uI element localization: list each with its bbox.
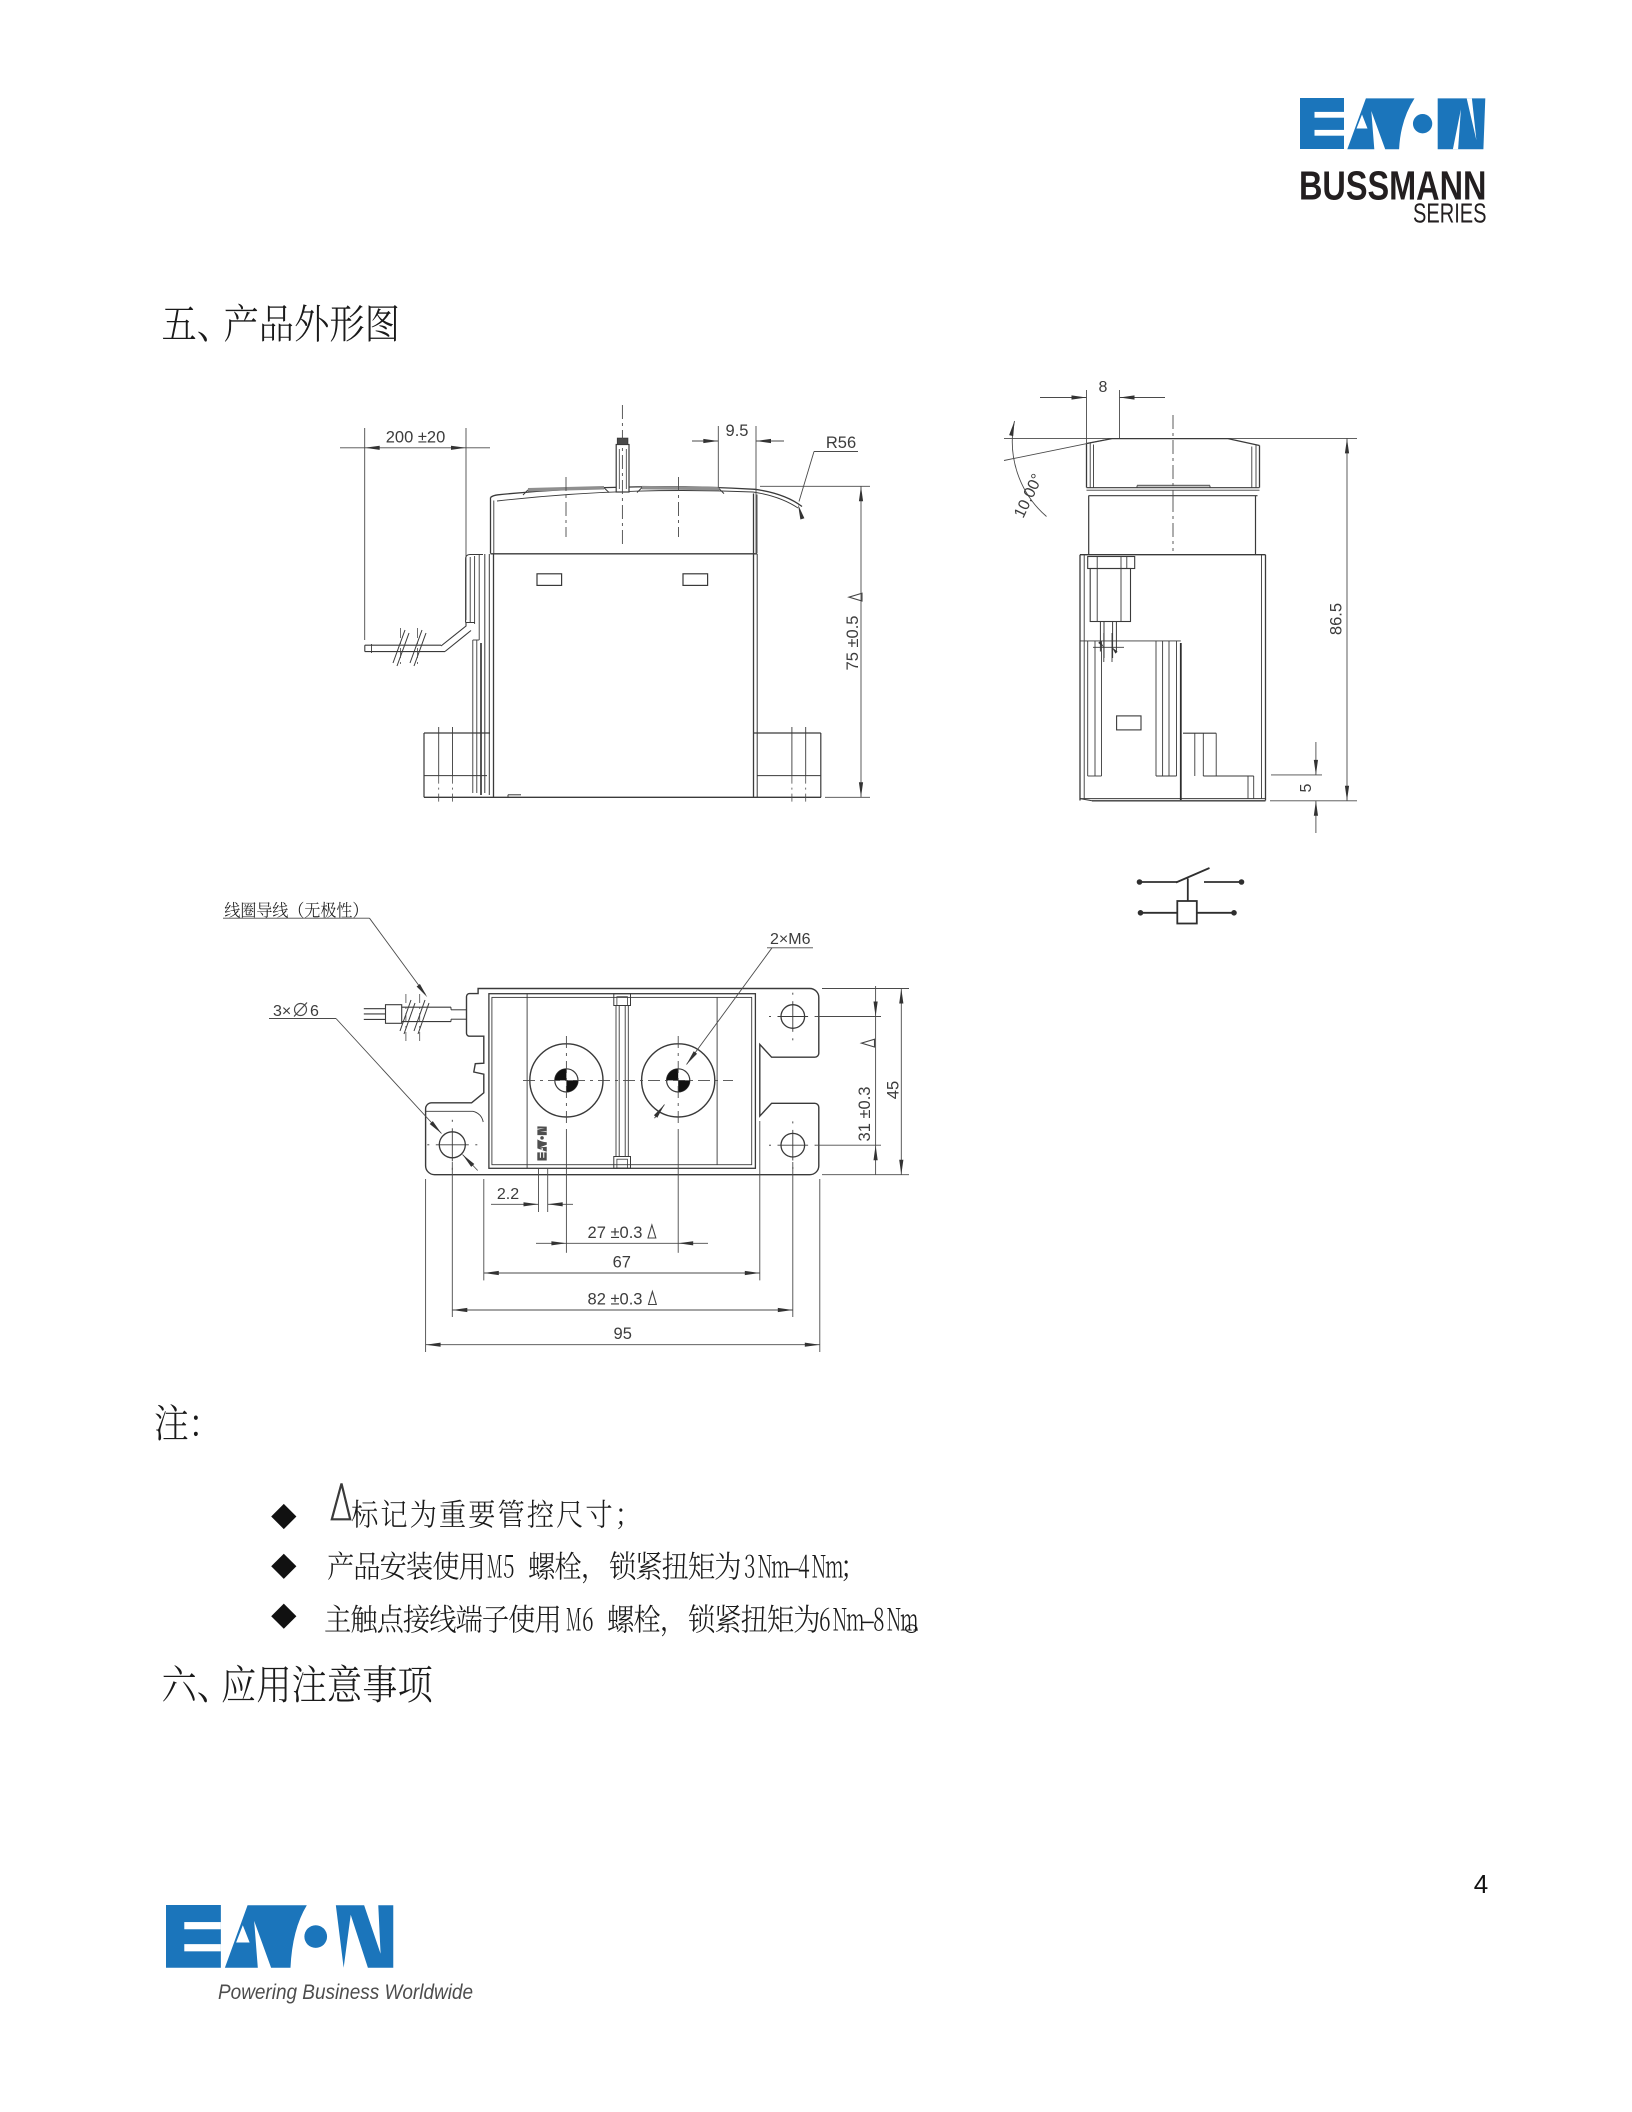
svg-text:2.2: 2.2 — [497, 1186, 519, 1203]
svg-text:75 ±0.5: 75 ±0.5 — [844, 616, 862, 671]
svg-text:Powering Business Worldwide: Powering Business Worldwide — [218, 1980, 473, 2004]
svg-text:SERIES: SERIES — [1413, 198, 1487, 229]
svg-text:4: 4 — [1474, 1869, 1488, 1899]
svg-text:R56: R56 — [826, 434, 856, 452]
svg-text:9.5: 9.5 — [726, 422, 749, 440]
svg-text:67: 67 — [613, 1254, 631, 1272]
svg-text:95: 95 — [614, 1325, 632, 1343]
svg-text:5: 5 — [1298, 783, 1315, 792]
svg-text:6: 6 — [310, 1003, 319, 1020]
svg-text:200 ±20: 200 ±20 — [386, 429, 446, 447]
svg-text:27 ±0.3: 27 ±0.3 — [588, 1224, 643, 1242]
svg-text:45: 45 — [885, 1081, 903, 1099]
svg-text:3×: 3× — [273, 1003, 291, 1020]
svg-text:8: 8 — [1099, 379, 1108, 396]
svg-text:31 ±0.3: 31 ±0.3 — [856, 1087, 874, 1142]
svg-text:2×M6: 2×M6 — [770, 931, 811, 948]
svg-text:82 ±0.3: 82 ±0.3 — [588, 1291, 643, 1309]
svg-text:86.5: 86.5 — [1328, 603, 1346, 635]
